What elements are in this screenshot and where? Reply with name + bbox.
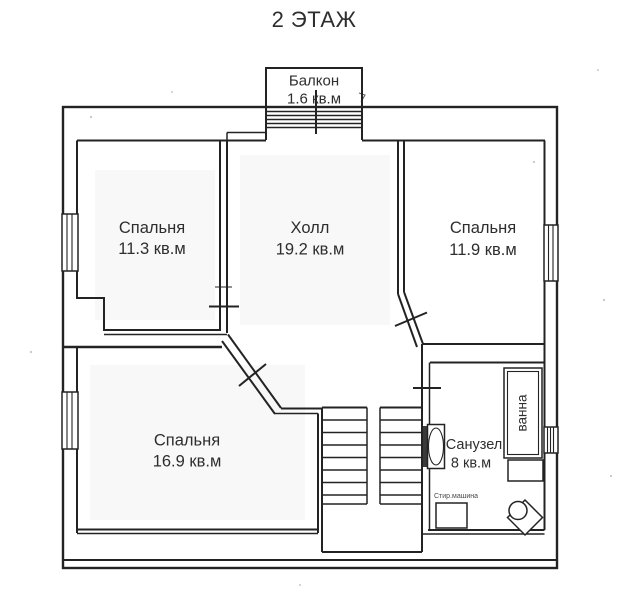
svg-text:Балкон: Балкон xyxy=(289,73,339,90)
window-symbol-right-2 xyxy=(544,427,558,453)
svg-text:Спальня: Спальня xyxy=(154,432,220,450)
bathtub-fixture: ванна xyxy=(504,368,542,458)
washing-machine-label: Стир.машина xyxy=(434,493,478,500)
sink-fixture xyxy=(423,425,445,469)
window-symbol-left-1 xyxy=(62,214,78,271)
svg-text:8 кв.м: 8 кв.м xyxy=(451,456,491,472)
svg-text:11.3 кв.м: 11.3 кв.м xyxy=(118,240,185,258)
svg-text:16.9 кв.м: 16.9 кв.м xyxy=(153,453,222,471)
washing-machine-fixture: Стир.машина xyxy=(434,493,478,528)
svg-text:Санузел: Санузел xyxy=(446,437,503,453)
floor-title: 2 ЭТАЖ xyxy=(272,7,357,32)
svg-text:Холл: Холл xyxy=(291,219,330,237)
scan-shading xyxy=(90,155,390,520)
svg-text:19.2 кв.м: 19.2 кв.м xyxy=(276,241,345,259)
floor-plan-canvas: 2 ЭТАЖ xyxy=(0,0,633,600)
label-bathroom: Санузел 8 кв.м xyxy=(446,437,503,472)
stair-treads-left xyxy=(322,420,367,495)
label-bedroom-top-right: Спальня 11.9 кв.м xyxy=(449,219,516,259)
bathtub-label: ванна xyxy=(515,394,530,431)
svg-text:Спальня: Спальня xyxy=(119,219,185,237)
window-symbol-right-1 xyxy=(544,225,558,281)
window-symbol-left-2 xyxy=(62,392,78,449)
stair-treads-right xyxy=(380,420,422,495)
wall-duct xyxy=(508,460,543,481)
svg-text:Спальня: Спальня xyxy=(450,219,516,237)
door-opening-bedroom-top-right xyxy=(395,313,427,327)
balcony-label: Балкон 1.6 кв.м xyxy=(287,73,341,108)
staircase xyxy=(322,344,422,552)
svg-text:1.6 кв.м: 1.6 кв.м xyxy=(287,91,341,108)
svg-text:11.9 кв.м: 11.9 кв.м xyxy=(449,241,516,259)
floor-plan-page: 2 ЭТАЖ xyxy=(0,0,633,600)
balcony-door-window-symbol xyxy=(227,112,362,142)
